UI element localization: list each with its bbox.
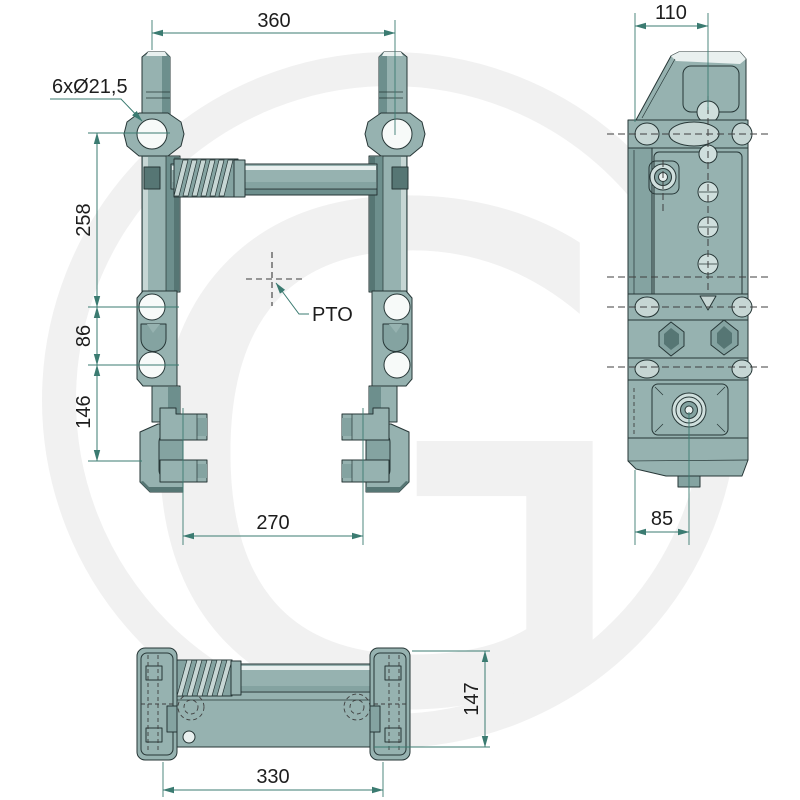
bolt-head-right [392, 167, 408, 189]
dim-front-width-label: 360 [257, 10, 290, 32]
dim-side-depth-label: 110 [655, 2, 687, 24]
dim-claw-spacing-label: 270 [256, 512, 289, 534]
drawing-page: G [0, 0, 800, 800]
bolt-head-left [144, 167, 160, 189]
dim-side-boss-offset-label: 85 [651, 508, 673, 530]
mount-hole [137, 119, 167, 149]
small-hole [183, 731, 195, 743]
dim-bottom-width-label: 330 [256, 766, 289, 788]
dim-left-middle-label: 86 [73, 325, 95, 347]
dim-left-lower-label: 146 [73, 395, 95, 428]
bottom-view [137, 648, 410, 760]
front-crossbar [144, 159, 408, 197]
dim-bottom-height-label: 147 [461, 682, 483, 715]
spring-coil-bottom [177, 660, 241, 696]
spring-coil [174, 159, 245, 197]
hole-callout-label: 6xØ21,5 [52, 76, 128, 98]
pto-label: PTO [312, 304, 353, 326]
technical-drawing: G [0, 0, 800, 800]
bottom-end-block-left [137, 648, 177, 760]
bottom-end-block-right [370, 648, 410, 760]
dim-left-upper-label: 258 [73, 203, 95, 236]
